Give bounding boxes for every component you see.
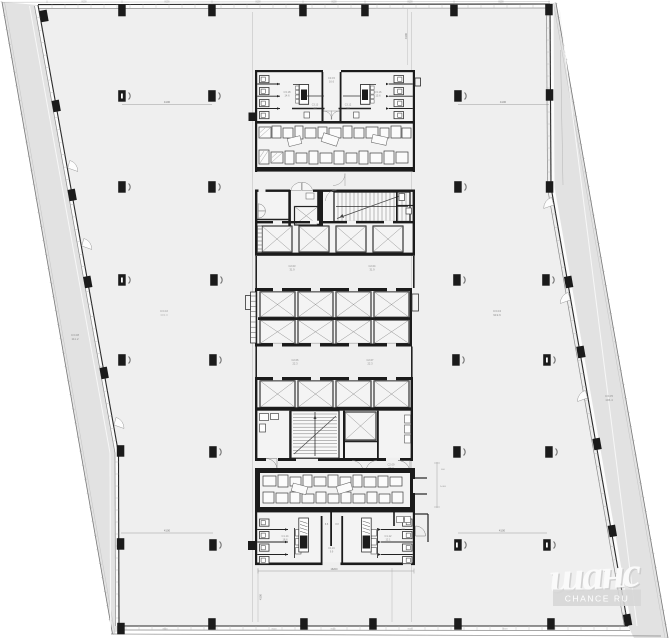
svg-text:22.3: 22.3 [367,362,373,366]
svg-text:C1.12: C1.12 [385,534,392,538]
svg-text:16.6: 16.6 [329,80,335,84]
svg-text:12.1: 12.1 [385,538,391,542]
svg-text:919.6: 919.6 [493,313,501,317]
svg-text:303.0: 303.0 [160,313,168,317]
svg-text:C2.09: C2.09 [388,463,395,467]
svg-text:4100: 4100 [259,593,263,600]
svg-text:2x300: 2x300 [440,486,447,488]
svg-text:4100: 4100 [499,529,506,533]
svg-text:8100: 8100 [407,2,413,4]
svg-text:8100: 8100 [503,628,509,630]
svg-text:8100: 8100 [331,628,337,630]
svg-text:8100: 8100 [272,628,278,630]
svg-text:106.4: 106.4 [605,398,613,402]
svg-text:14.6: 14.6 [284,94,290,98]
svg-text:C2.07: C2.07 [367,358,374,362]
svg-text:C3.18: C3.18 [284,90,291,94]
svg-text:C2.03: C2.03 [289,264,296,268]
svg-text:8100: 8100 [81,2,87,4]
svg-text:8100: 8100 [498,2,504,4]
svg-text:18.6: 18.6 [282,538,288,542]
svg-text:C1.14: C1.14 [282,534,289,538]
svg-text:4100: 4100 [164,100,171,104]
svg-text:4100: 4100 [500,100,507,104]
svg-text:111.2: 111.2 [71,337,78,341]
svg-text:16200: 16200 [331,568,339,571]
svg-text:C3.16: C3.16 [375,90,382,94]
svg-text:4100: 4100 [164,529,171,533]
svg-text:22.3: 22.3 [292,362,298,366]
svg-text:8100: 8100 [163,628,169,630]
svg-text:C2.04: C2.04 [369,264,376,268]
svg-text:15.6: 15.6 [375,94,381,98]
svg-text:8100: 8100 [408,628,414,630]
svg-text:C2.06: C2.06 [292,358,299,362]
svg-text:C3.15: C3.15 [328,76,335,80]
svg-text:31.9: 31.9 [289,268,295,272]
svg-text:CHANCE RU: CHANCE RU [565,594,630,604]
svg-text:31.9: 31.9 [369,268,375,272]
